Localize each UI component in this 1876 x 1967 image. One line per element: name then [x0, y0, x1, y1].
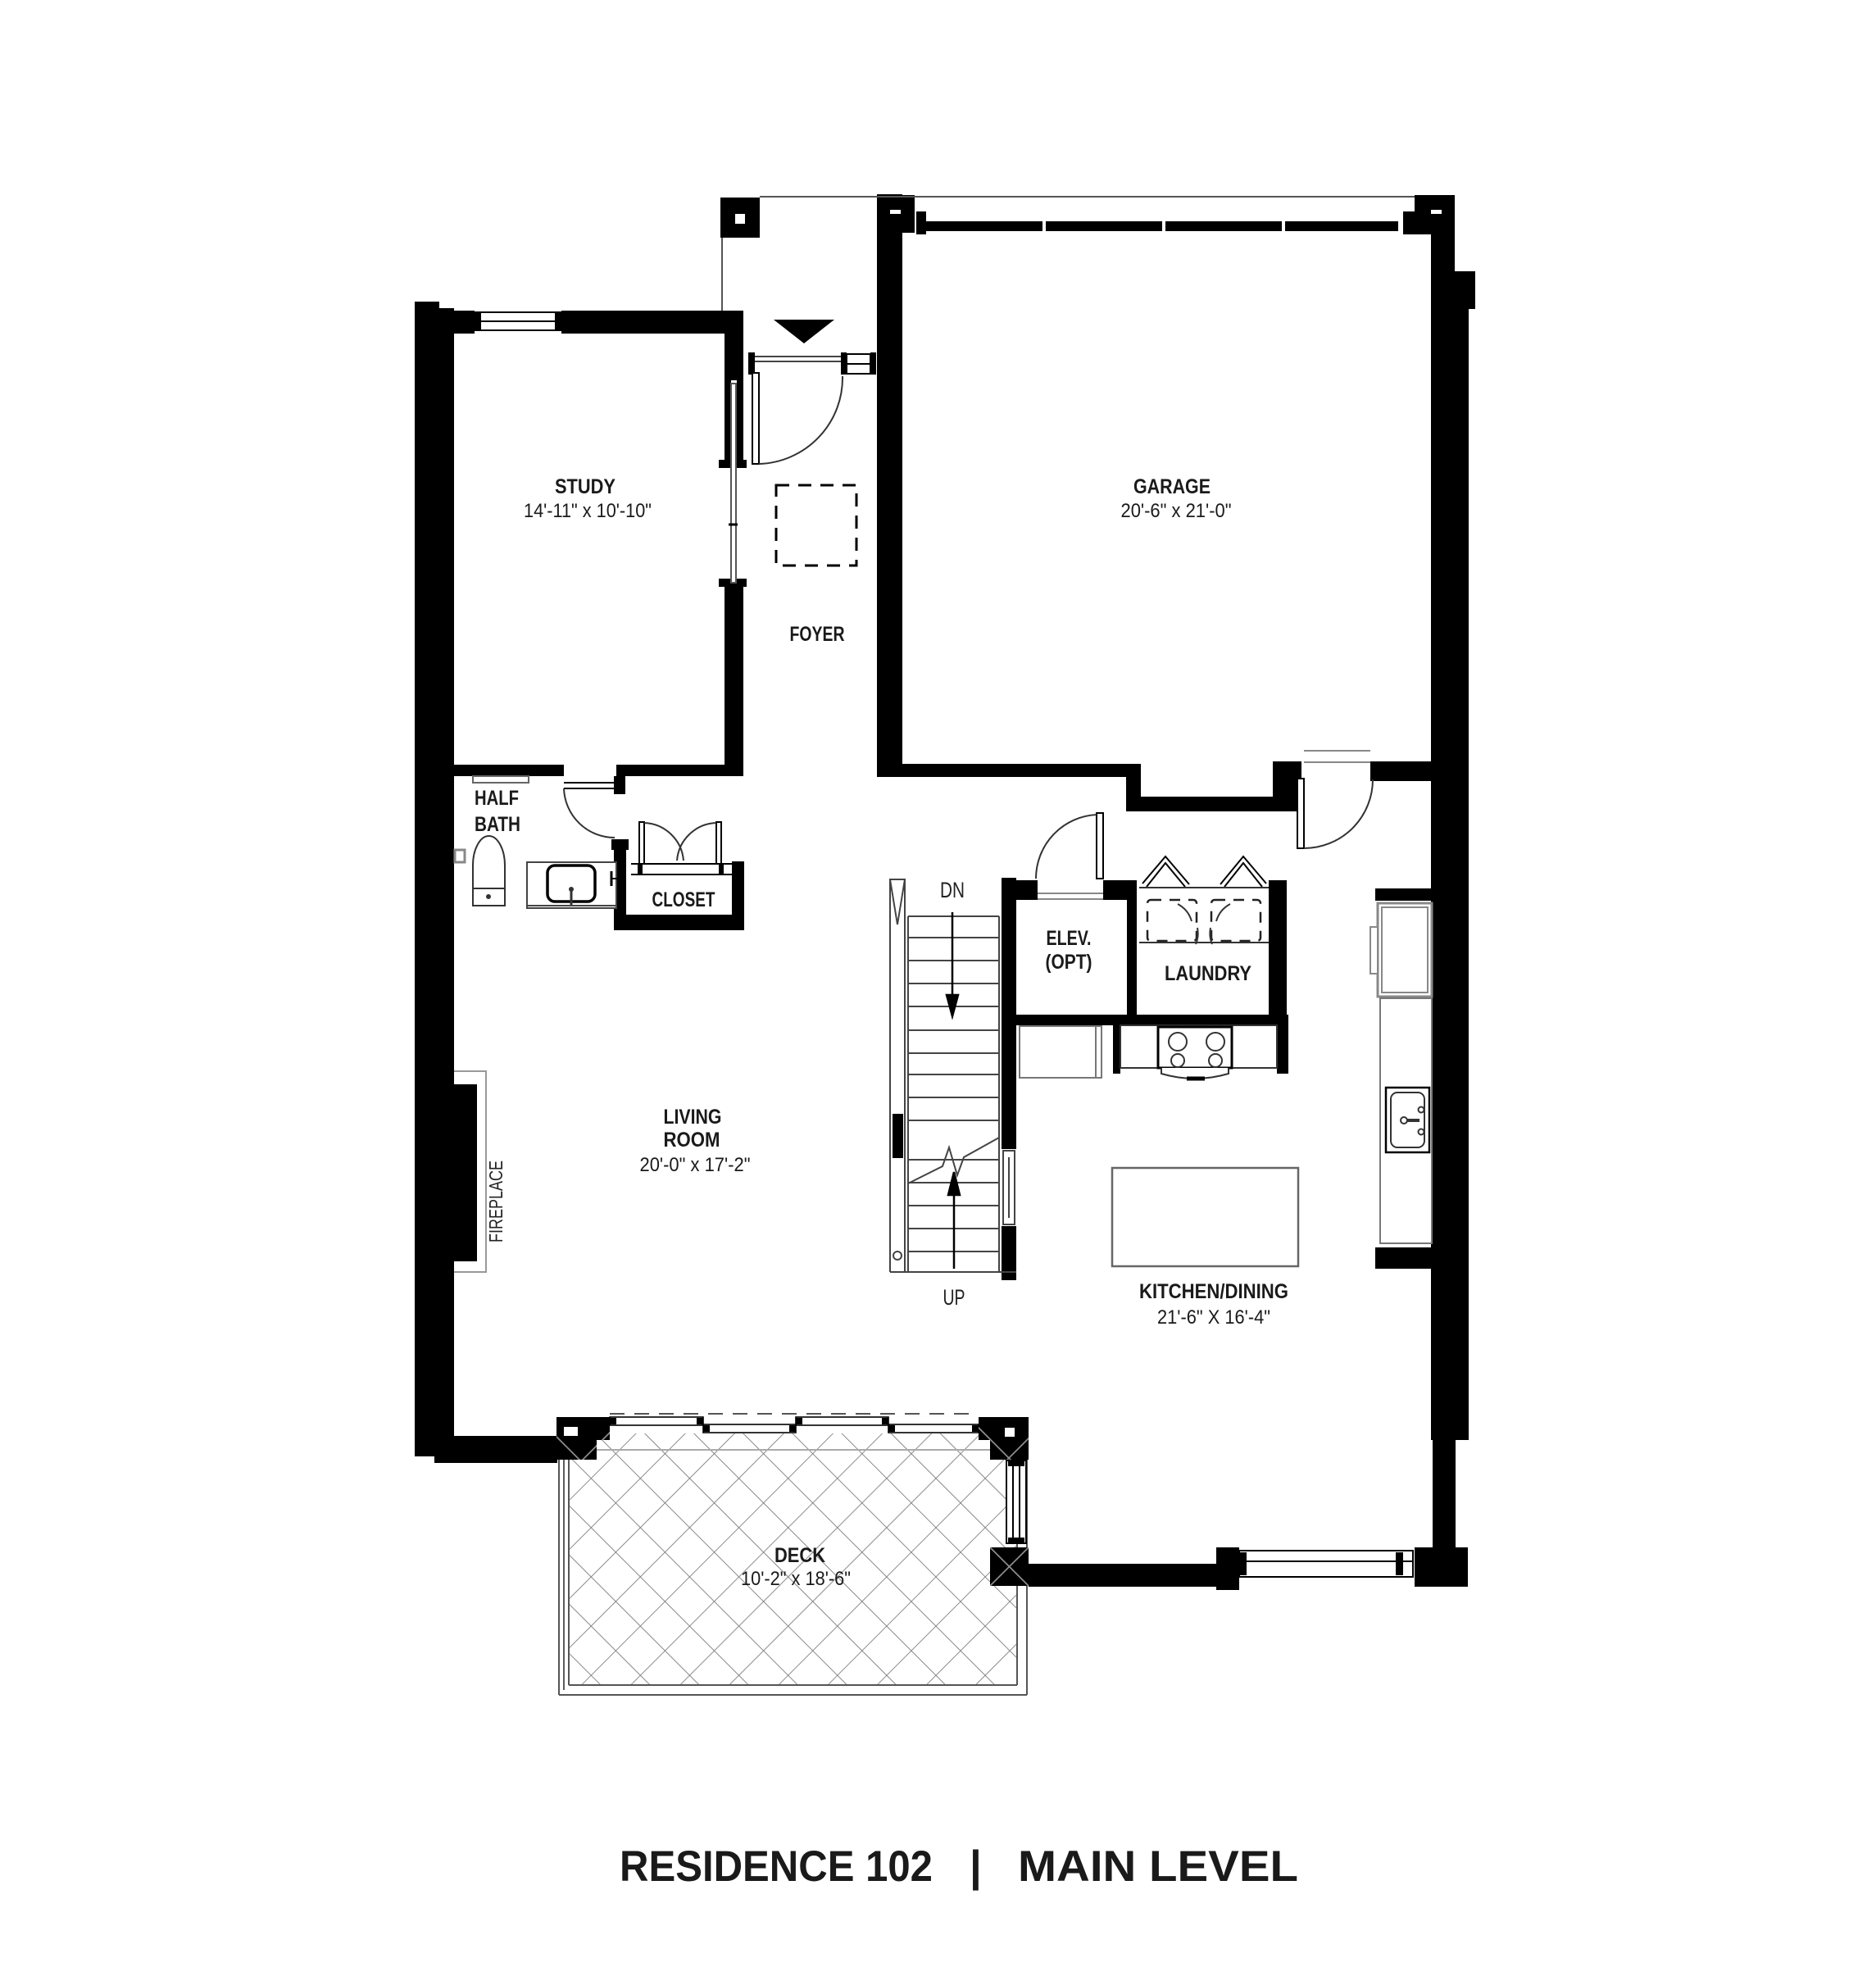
svg-text:RESIDENCE 102: RESIDENCE 102 [620, 1842, 933, 1891]
svg-text:LAUNDRY: LAUNDRY [1165, 962, 1251, 985]
svg-text:21'-6" X 16'-4": 21'-6" X 16'-4" [1157, 1306, 1270, 1329]
svg-text:FIREPLACE: FIREPLACE [485, 1161, 506, 1242]
svg-text:CLOSET: CLOSET [652, 888, 715, 911]
svg-text:20'-6" x 21'-0": 20'-6" x 21'-0" [1121, 500, 1232, 522]
svg-text:DN: DN [940, 878, 965, 902]
svg-text:GARAGE: GARAGE [1133, 475, 1211, 498]
svg-text:KITCHEN/DINING: KITCHEN/DINING [1139, 1280, 1288, 1303]
svg-text:(OPT): (OPT) [1046, 951, 1092, 974]
svg-text:ROOM: ROOM [664, 1129, 720, 1152]
svg-text:LIVING: LIVING [664, 1106, 722, 1129]
svg-text:FOYER: FOYER [790, 623, 845, 646]
svg-text:HALF: HALF [475, 787, 519, 810]
svg-text:BATH: BATH [475, 813, 520, 836]
svg-text:20'-0" x 17'-2": 20'-0" x 17'-2" [640, 1154, 751, 1176]
svg-text:|: | [970, 1842, 982, 1892]
svg-text:10'-2" x 18'-6": 10'-2" x 18'-6" [741, 1568, 851, 1590]
svg-text:MAIN LEVEL: MAIN LEVEL [1018, 1842, 1298, 1891]
svg-text:UP: UP [943, 1285, 965, 1310]
svg-text:ELEV.: ELEV. [1047, 927, 1092, 950]
svg-text:14'-11" x 10'-10": 14'-11" x 10'-10" [524, 500, 652, 522]
svg-text:STUDY: STUDY [555, 475, 615, 498]
svg-text:DECK: DECK [774, 1544, 825, 1567]
